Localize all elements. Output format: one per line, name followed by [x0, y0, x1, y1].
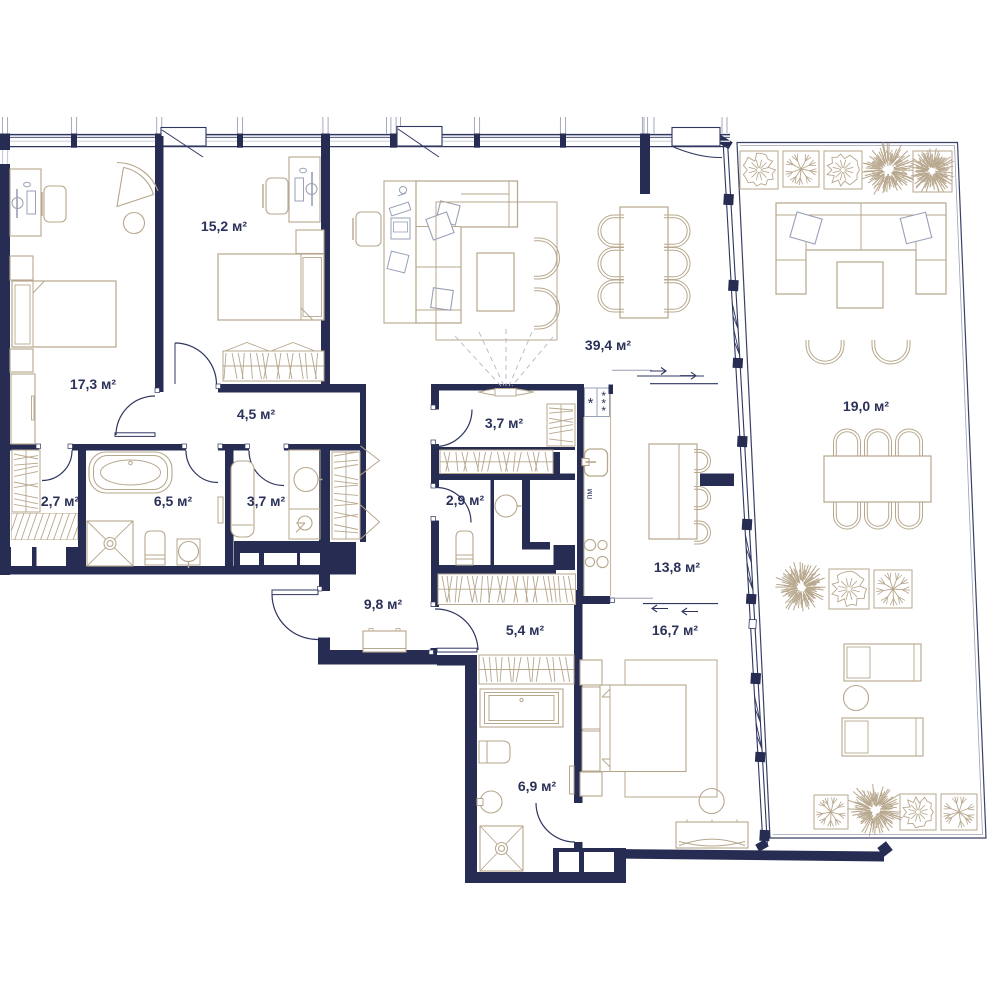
svg-text:15,2 м²: 15,2 м²: [201, 218, 247, 234]
svg-text:4,5 м²: 4,5 м²: [237, 406, 276, 422]
svg-text:13,8 м²: 13,8 м²: [654, 559, 700, 575]
svg-text:17,3 м²: 17,3 м²: [70, 376, 116, 392]
svg-text:*: *: [601, 404, 606, 418]
svg-text:6,9 м²: 6,9 м²: [518, 778, 557, 794]
svg-text:5,4 м²: 5,4 м²: [506, 622, 545, 638]
svg-text:6,5 м²: 6,5 м²: [154, 493, 193, 509]
svg-text:9,8 м²: 9,8 м²: [364, 596, 403, 612]
svg-text:пм: пм: [584, 489, 594, 500]
svg-text:19,0 м²: 19,0 м²: [843, 398, 889, 414]
svg-text:3,7 м²: 3,7 м²: [485, 415, 524, 431]
svg-text:2,9 м²: 2,9 м²: [446, 492, 485, 508]
svg-text:3,7 м²: 3,7 м²: [247, 493, 286, 509]
svg-text:16,7 м²: 16,7 м²: [652, 622, 698, 638]
svg-text:2,7 м²: 2,7 м²: [41, 493, 80, 509]
svg-text:39,4 м²: 39,4 м²: [585, 337, 631, 353]
svg-text:*: *: [588, 395, 594, 412]
